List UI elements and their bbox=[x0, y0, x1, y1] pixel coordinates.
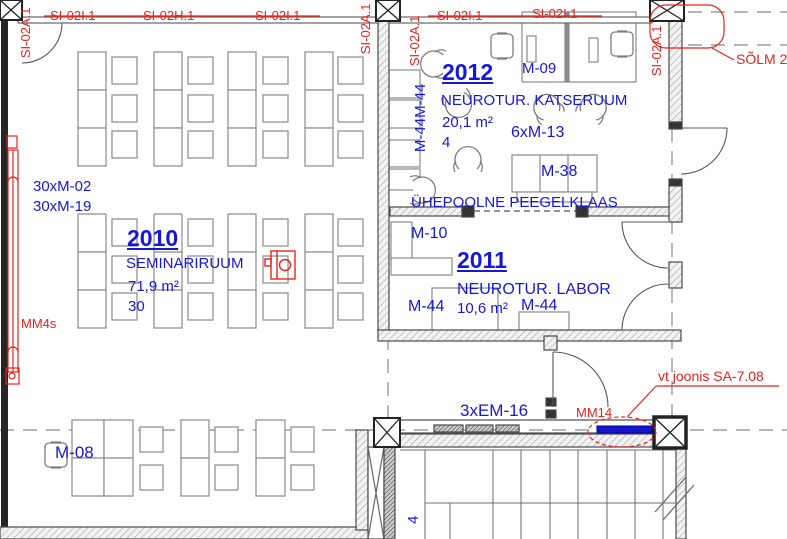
wall-tag: SI-02H.1 bbox=[143, 9, 194, 23]
wall-tag: SI-02I.1 bbox=[255, 9, 301, 23]
desk bbox=[305, 290, 333, 328]
tag-m44-pair: M-44M-44 bbox=[413, 78, 429, 158]
desk bbox=[305, 128, 333, 166]
door-arc bbox=[553, 352, 608, 407]
office-chair-icon bbox=[491, 33, 513, 59]
desk bbox=[305, 90, 333, 128]
floorplan: SI-02I.1 SI-02H.1 SI-02I.1 SI-02I.1 SI-0… bbox=[0, 0, 787, 539]
door-arc bbox=[622, 222, 668, 268]
column bbox=[376, 0, 400, 21]
desk bbox=[72, 458, 104, 496]
desk bbox=[112, 131, 137, 158]
desk bbox=[188, 131, 213, 158]
tag-stair: 4 bbox=[406, 505, 422, 535]
room-2010-capacity: 30 bbox=[128, 299, 145, 315]
desk bbox=[228, 90, 256, 128]
desk bbox=[215, 427, 238, 452]
door-arc bbox=[681, 128, 727, 174]
room-2012-area: 20,1 m² bbox=[442, 115, 493, 131]
desk bbox=[188, 293, 213, 320]
desk bbox=[228, 214, 256, 252]
desk bbox=[78, 290, 106, 328]
desk bbox=[78, 128, 106, 166]
wall-corridor-south bbox=[394, 434, 660, 447]
desk bbox=[78, 90, 106, 128]
desk bbox=[78, 252, 106, 290]
chair-icon bbox=[454, 147, 483, 172]
tag-m08: M-08 bbox=[55, 444, 94, 462]
desk bbox=[181, 420, 209, 458]
wall-left bbox=[1, 17, 8, 530]
window-sill bbox=[466, 425, 493, 432]
monitor-icon bbox=[527, 36, 536, 62]
room-2010-number: 2010 bbox=[127, 226, 178, 250]
desk bbox=[181, 458, 209, 496]
vt-joonis-label: vt joonis SA-7.08 bbox=[658, 369, 764, 384]
window-sill bbox=[434, 425, 463, 432]
desk bbox=[338, 256, 363, 283]
desk bbox=[256, 458, 285, 496]
desk bbox=[263, 95, 288, 122]
desk bbox=[140, 465, 163, 490]
wall-tag-vertical: SI-02A.1 bbox=[359, 0, 373, 59]
column bbox=[374, 418, 400, 447]
desk bbox=[188, 95, 213, 122]
tag-30xm02: 30xM-02 bbox=[33, 179, 91, 195]
wall-bottom bbox=[0, 527, 394, 539]
wall-middle bbox=[378, 20, 389, 332]
desk bbox=[104, 420, 133, 458]
wall-tag: SI-02I.1 bbox=[532, 7, 578, 21]
desk bbox=[263, 131, 288, 158]
desk bbox=[338, 131, 363, 158]
wall-tag: SI-02I.1 bbox=[437, 9, 483, 23]
solm-callout-label: SÕLM 2 bbox=[736, 52, 787, 67]
wall-tag: SI-02I.1 bbox=[50, 9, 96, 23]
desk bbox=[188, 219, 213, 246]
desk bbox=[154, 90, 182, 128]
desk bbox=[338, 219, 363, 246]
counter-m10 bbox=[391, 222, 412, 260]
room-2012-name: NEUROTUR. KATSERUUM bbox=[441, 93, 627, 109]
desk bbox=[112, 95, 137, 122]
tag-6xm13: 6xM-13 bbox=[511, 125, 564, 142]
desk bbox=[228, 128, 256, 166]
mirror-note: ÜHEPOOLNE PEEGELKLAAS bbox=[411, 195, 618, 211]
desk bbox=[140, 427, 163, 452]
room-2011-area: 10,6 m² bbox=[457, 301, 508, 317]
monitor-icon bbox=[589, 38, 598, 62]
desk bbox=[305, 52, 333, 90]
tag-m44-left: M-44 bbox=[408, 299, 444, 316]
desk bbox=[112, 57, 137, 84]
tag-m09: M-09 bbox=[522, 61, 556, 77]
desk bbox=[256, 420, 285, 458]
desk bbox=[263, 219, 288, 246]
desk bbox=[263, 293, 288, 320]
desk bbox=[291, 465, 314, 490]
tag-m38: M-38 bbox=[541, 164, 577, 181]
desk bbox=[154, 128, 182, 166]
desk bbox=[291, 427, 314, 452]
desk bbox=[305, 214, 333, 252]
desk bbox=[78, 214, 106, 252]
desk bbox=[215, 465, 238, 490]
desk bbox=[338, 293, 363, 320]
floorplan-canvas bbox=[0, 0, 787, 539]
door-arc bbox=[622, 284, 668, 330]
riser-symbol bbox=[6, 136, 19, 384]
desk bbox=[154, 290, 182, 328]
wall-2011-south bbox=[378, 330, 681, 341]
window-sill bbox=[496, 425, 519, 432]
desk bbox=[228, 52, 256, 90]
column bbox=[654, 417, 686, 448]
desk bbox=[104, 458, 133, 496]
desks bbox=[72, 52, 363, 496]
wall-tag-vertical: SI-02A.1 bbox=[650, 21, 664, 81]
office-chair-icon bbox=[611, 31, 633, 57]
desk bbox=[338, 95, 363, 122]
wall-right-upper bbox=[669, 20, 682, 122]
desk bbox=[78, 52, 106, 90]
tag-3xem16: 3xEM-16 bbox=[460, 402, 528, 420]
desk bbox=[188, 57, 213, 84]
room-2012-capacity: 4 bbox=[442, 135, 450, 151]
stairs bbox=[400, 450, 694, 539]
desk bbox=[228, 290, 256, 328]
mm14-label: MM14 bbox=[576, 406, 612, 420]
room-2012-number: 2012 bbox=[442, 60, 493, 84]
mm4s-label: MM4s bbox=[21, 317, 56, 331]
desk bbox=[154, 52, 182, 90]
desk bbox=[305, 252, 333, 290]
beam-element bbox=[597, 426, 652, 433]
room-2011-number: 2011 bbox=[457, 248, 507, 272]
column bbox=[650, 0, 684, 21]
wall-tag-vertical: SI-02A.1 bbox=[19, 3, 33, 63]
room-2010-name: SEMINARIRUUM bbox=[126, 256, 244, 272]
room-2010-area: 71,9 m² bbox=[128, 279, 179, 295]
tag-m44-right: M-44 bbox=[521, 298, 557, 315]
tag-30xm19: 30xM-19 bbox=[33, 199, 91, 215]
wall-tag-vertical: SI-02A.1 bbox=[408, 11, 422, 71]
desk bbox=[338, 57, 363, 84]
tag-m10: M-10 bbox=[411, 226, 447, 243]
solm-leader bbox=[712, 48, 734, 60]
desk bbox=[263, 57, 288, 84]
vt-leader bbox=[627, 386, 656, 417]
